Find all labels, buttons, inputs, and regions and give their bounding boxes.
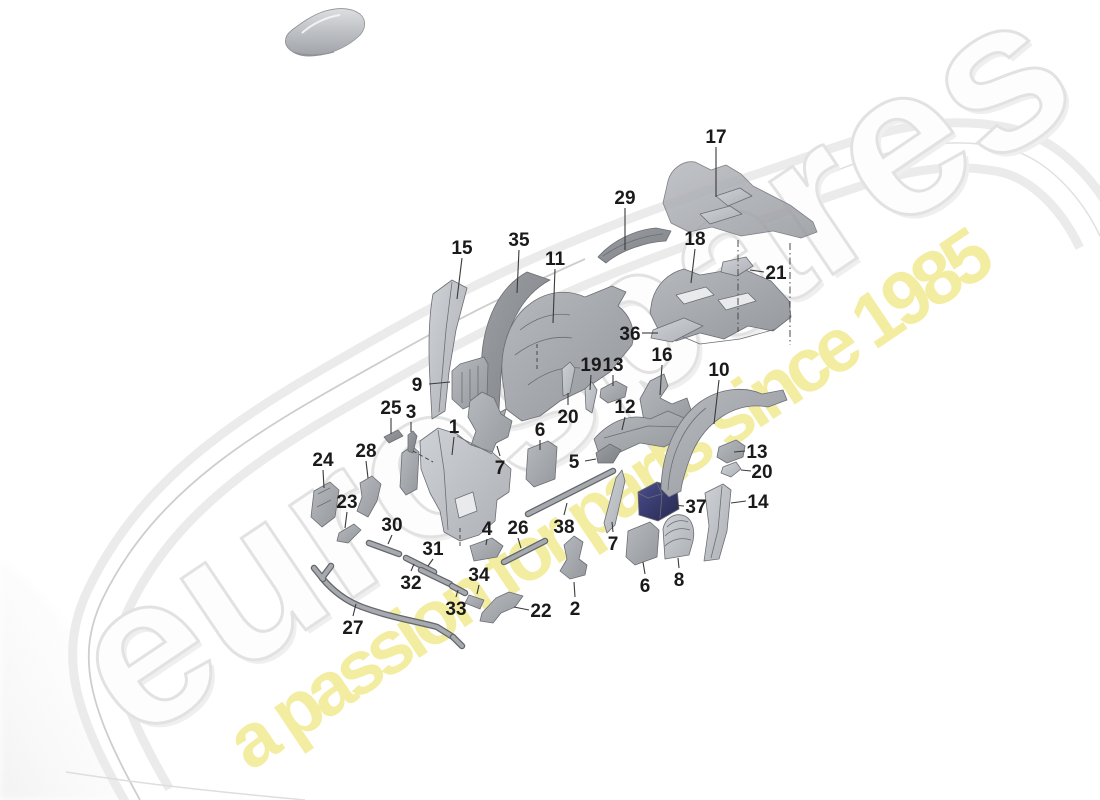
part-label-6[interactable]: 6	[535, 420, 546, 441]
part-label-17[interactable]: 17	[705, 127, 726, 148]
parts-diagram-page: eurospares eurospares a passion for part…	[0, 0, 1100, 800]
part-label-1[interactable]: 1	[449, 417, 460, 438]
part-label-7[interactable]: 7	[608, 534, 619, 555]
part-label-6[interactable]: 6	[640, 576, 651, 597]
part-label-14[interactable]: 14	[747, 492, 769, 513]
leader-line-6	[643, 562, 645, 574]
part-label-30[interactable]: 30	[381, 515, 402, 536]
part-label-22[interactable]: 22	[530, 601, 551, 622]
part-label-3[interactable]: 3	[406, 402, 417, 423]
part-label-32[interactable]: 32	[400, 573, 421, 594]
part-label-9[interactable]: 9	[412, 375, 423, 396]
part-label-10[interactable]: 10	[708, 360, 729, 381]
part-label-19[interactable]: 19	[580, 355, 601, 376]
part-label-7[interactable]: 7	[495, 458, 506, 479]
part-label-20[interactable]: 20	[751, 462, 772, 483]
part-label-33[interactable]: 33	[445, 599, 466, 620]
part-label-31[interactable]: 31	[422, 539, 444, 560]
part-label-13[interactable]: 13	[602, 355, 623, 376]
part-label-5[interactable]: 5	[569, 452, 580, 473]
part-label-12[interactable]: 12	[614, 397, 635, 418]
part-label-36[interactable]: 36	[619, 324, 640, 345]
leader-line-20	[741, 470, 751, 471]
part-label-16[interactable]: 16	[651, 345, 672, 366]
part-panel-14[interactable]	[704, 484, 731, 561]
part-label-26[interactable]: 26	[507, 518, 528, 539]
car-silhouette-body	[285, 9, 364, 56]
part-label-35[interactable]: 35	[508, 230, 530, 251]
part-label-29[interactable]: 29	[614, 188, 635, 209]
part-pad-6a[interactable]	[526, 441, 557, 487]
diagram-canvas: eurospares eurospares a passion for part…	[0, 0, 1100, 800]
part-label-2[interactable]: 2	[570, 599, 581, 620]
part-label-34[interactable]: 34	[468, 565, 490, 586]
part-label-8[interactable]: 8	[674, 570, 685, 591]
part-label-13[interactable]: 13	[746, 442, 767, 463]
part-label-28[interactable]: 28	[355, 441, 376, 462]
part-label-21[interactable]: 21	[765, 263, 787, 284]
part-label-38[interactable]: 38	[553, 517, 574, 538]
part-label-27[interactable]: 27	[342, 618, 363, 639]
leader-line-8	[678, 558, 679, 568]
part-label-24[interactable]: 24	[312, 450, 334, 471]
part-label-23[interactable]: 23	[336, 492, 357, 513]
part-label-25[interactable]: 25	[380, 398, 402, 419]
part-label-18[interactable]: 18	[684, 229, 705, 250]
part-label-37[interactable]: 37	[685, 497, 706, 518]
car-silhouette	[285, 9, 364, 56]
part-label-15[interactable]: 15	[451, 238, 473, 259]
part-bracket-left-of-1[interactable]	[400, 446, 419, 495]
part-label-4[interactable]: 4	[482, 519, 493, 540]
leader-line-14	[731, 501, 746, 503]
leader-line-2	[574, 582, 575, 597]
part-pad-8[interactable]	[663, 515, 694, 559]
part-label-11[interactable]: 11	[545, 249, 566, 270]
part-label-20[interactable]: 20	[557, 407, 578, 428]
